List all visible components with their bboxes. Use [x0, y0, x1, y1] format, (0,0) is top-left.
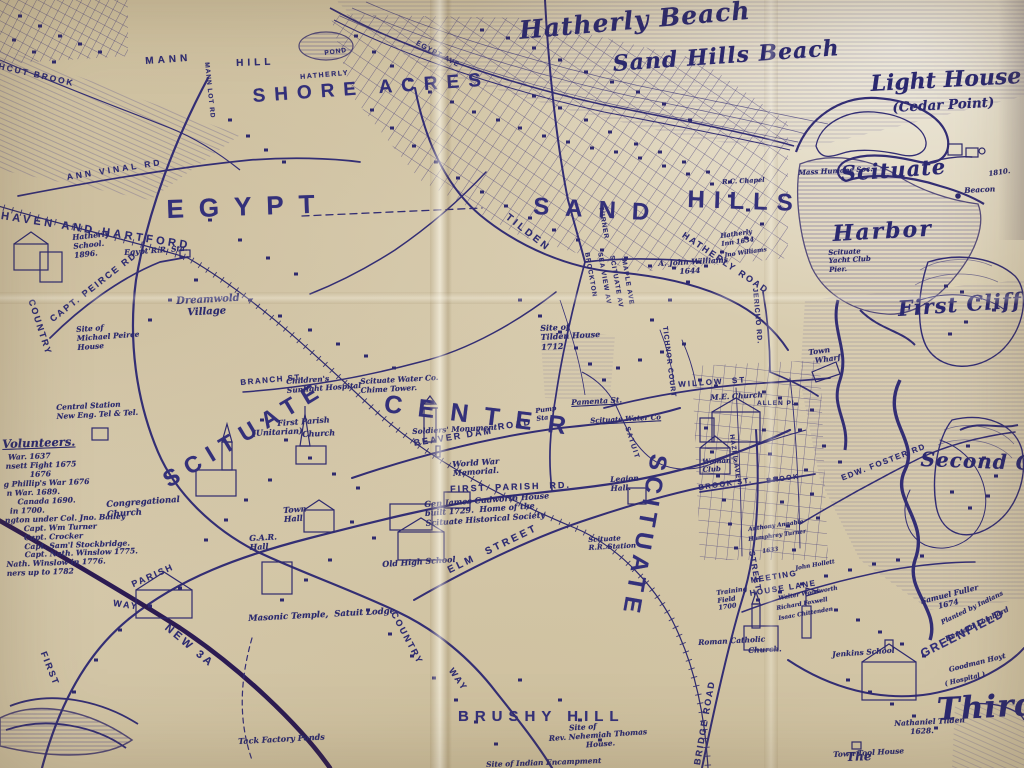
label-kent-street-v: STREET — [747, 550, 763, 592]
label-old-high-school: Old High School — [382, 555, 456, 570]
label-brook-st: BROOK ST. — [698, 476, 753, 492]
label-scituate-harbor-2: Harbor — [832, 217, 934, 248]
label-rc-chapel: R.C. Chapel — [722, 177, 765, 187]
label-first-v: FIRST — [38, 650, 61, 687]
label-light-house-pt: Light House Pt — [870, 62, 1024, 98]
label-cedar-point: (Cedar Point) — [892, 96, 995, 117]
label-settler-1633: 1633 — [762, 547, 779, 556]
label-beacon: Beacon — [964, 185, 995, 195]
label-jno-williams: Jno Williams — [724, 246, 767, 259]
label-childrens-hospital: Children's Sunlight Hospital — [286, 373, 361, 396]
label-legion-hall: Legion Hall. — [610, 475, 639, 494]
label-world-war-memorial: World War Memorial. — [452, 457, 500, 479]
map-labels: Hatherly BeachSand Hills BeachLight Hous… — [0, 0, 1024, 768]
label-new-3a: NEW 3A — [162, 622, 217, 671]
label-satuit-brook-1: SATUIT — [622, 426, 640, 461]
label-volunteers-list: War. 1637 nsett Fight 1675 1676 g Philli… — [0, 449, 139, 579]
label-hills: HILLS — [687, 186, 802, 218]
label-jericho-rd: JERICHO RD. — [750, 288, 763, 345]
label-town-tool-house: Town Tool House — [833, 747, 904, 760]
label-bridge-road-v: BRIDGE ROAD — [692, 679, 717, 766]
label-second-cliff: Second Cliff — [920, 448, 1024, 477]
label-roman-catholic-2: Church. — [748, 645, 782, 656]
label-jenkins-school: Jenkins School — [832, 647, 895, 660]
label-willow-st: WILLOW ST — [678, 375, 746, 389]
label-volunteers-heading: Volunteers. — [2, 435, 76, 451]
label-way-w: WAY — [113, 598, 140, 612]
label-1810: 1810. — [988, 167, 1011, 178]
label-mann-hill: HILL — [236, 57, 275, 70]
label-training-field: Training Field 1700 — [716, 586, 750, 613]
label-hatherly-beach: Hatherly Beach — [518, 0, 752, 45]
label-scituate-water-co: Scituate Water Co — [590, 413, 661, 425]
label-nathaniel-tilden: Nathaniel Tilden 1628. — [894, 716, 966, 737]
label-nehemiah-thomas: Site of Rev. Nehemiah Thomas House. — [548, 719, 648, 752]
label-shore-acres: SHORE ACRES — [252, 69, 491, 108]
label-me-church: M.E. Church — [710, 391, 763, 403]
vintage-scituate-map: Hatherly BeachSand Hills BeachLight Hous… — [0, 0, 1024, 768]
label-egypt-rr-sta: Egypt R.R. Sta. — [124, 245, 188, 258]
label-ann-vinal-rd: ANN VINAL RD — [66, 157, 163, 182]
label-water-co-tower: Scituate Water Co. Chime Tower. — [360, 374, 439, 396]
label-elm-street: ELM STREET — [446, 523, 540, 577]
label-musquashcut-brook: MUSQUASHCUT BROOK — [0, 48, 76, 88]
label-yacht-club-pier: Scituate Yacht Club Pier. — [828, 247, 871, 274]
label-mann-lot-rd: MANN LOT RD — [202, 62, 216, 119]
label-tilden-house: Site of Tilden House 1712 — [540, 321, 601, 352]
label-gar-hall: G.A.R. Hall — [249, 533, 278, 553]
label-country-way-n: COUNTRY — [26, 298, 54, 357]
label-settler-hollett: John Hollett — [795, 559, 835, 573]
label-sand-hills-beach: Sand Hills Beach — [612, 36, 841, 78]
label-country-way-s: COUNTRY — [389, 610, 426, 666]
label-town-hall: Town Hall — [283, 504, 307, 524]
label-john-williams: A. John Williams 1644 — [658, 256, 729, 277]
label-mann: MANN — [145, 53, 192, 68]
label-egypt-ave: EGYPT AVE — [414, 40, 461, 70]
label-satuit-brook-2: BROOK — [766, 473, 800, 486]
label-central-station: Central Station New Eng. Tel & Tel. — [56, 400, 138, 422]
label-first-parish-church-2: (Unitarian) — [252, 426, 303, 438]
label-hatherly-school: Hatherly School. 1896. — [72, 230, 111, 260]
label-dreamwold: Dreamwold Village — [176, 293, 241, 320]
label-first-cliff: First Cliff — [897, 288, 1023, 321]
label-egypt: EGYPT — [166, 188, 330, 224]
label-tack-factory-ponds: Tack Factory Ponds — [238, 732, 325, 746]
label-way-s: WAY — [446, 666, 469, 693]
label-first-parish-church-3: Church — [302, 428, 335, 439]
label-indian-encampment: Site of Indian Encampment — [486, 757, 602, 768]
label-capt-peirce-rd: CAPT. PEIRCE RD — [48, 250, 139, 325]
label-peirce-house: Site of Michael Peirce House — [76, 322, 140, 353]
label-edw-foster-rd: EDW. FOSTER RD — [840, 442, 927, 483]
label-pond: POND — [324, 47, 348, 58]
label-pamenta-st: Pamenta St. — [571, 396, 622, 407]
label-allen-pl: ALLEN PL. — [757, 400, 800, 408]
label-masonic-temple: Masonic Temple, Satuit Lodge — [248, 606, 395, 624]
label-town-wharf: Town Wharf — [808, 345, 841, 367]
label-hatherly-inn: Hatherly Inn 1634 — [720, 228, 755, 248]
label-womans-club: Woman's Club — [702, 456, 738, 474]
label-pump-sta: Pump Sta — [535, 405, 558, 423]
label-scituate-rr-station: Scituate R.R. Station — [588, 534, 636, 553]
label-tichnor-court: TICHNOR COURT — [660, 326, 677, 398]
